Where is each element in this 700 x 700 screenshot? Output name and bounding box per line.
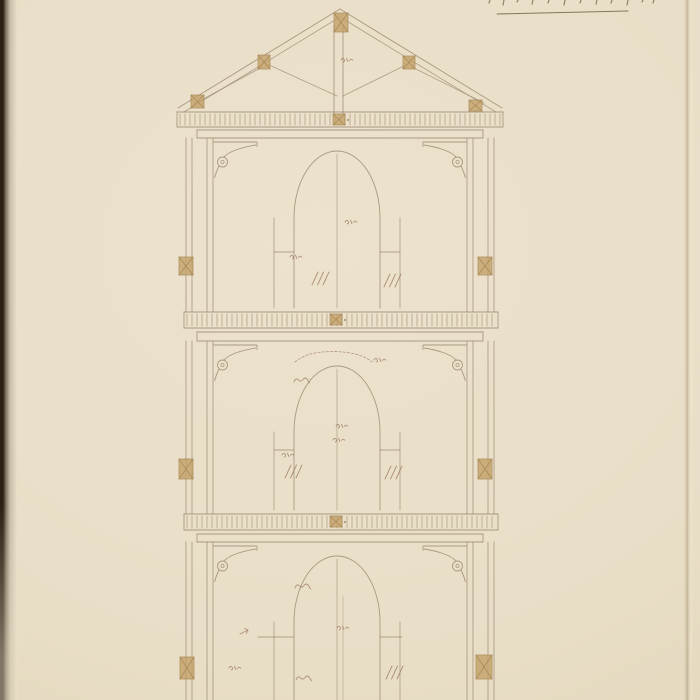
annotation-scrib — [295, 584, 311, 589]
annotation-hatch — [285, 465, 302, 478]
annotation-arcnote — [295, 351, 372, 362]
annotation-scrib — [296, 676, 312, 681]
tower-section-drawing — [0, 0, 700, 700]
handwritten-annotations — [229, 58, 403, 681]
annotation-scrib — [294, 378, 310, 383]
band-center-marks — [330, 114, 349, 527]
annotation-fig — [229, 666, 241, 670]
corbel-bracket — [213, 546, 257, 582]
story-2 — [186, 332, 494, 514]
story-3 — [186, 534, 494, 700]
wall-pilasters — [186, 341, 494, 514]
annotation-fig — [336, 424, 348, 428]
truss-joint-markers — [191, 13, 482, 111]
corbel-bracket — [423, 142, 467, 178]
annotation-hatch — [385, 466, 402, 479]
wall-pilasters — [186, 138, 494, 312]
annotation-fig — [345, 220, 357, 224]
wall-pilasters — [186, 542, 494, 700]
roof-truss — [178, 9, 502, 114]
arched-opening — [274, 366, 400, 510]
corbel-bracket — [423, 345, 467, 381]
annotation-fig — [290, 255, 302, 259]
arched-opening — [274, 151, 400, 308]
annotation-fig — [282, 453, 294, 457]
annotation-fig — [374, 358, 386, 362]
corbel-bracket — [423, 546, 467, 582]
scanned-page — [0, 0, 700, 700]
annotation-hatch — [384, 274, 401, 287]
story-1 — [186, 130, 494, 312]
inscription-fragment — [489, 0, 654, 14]
annotation-tick — [240, 629, 248, 635]
arched-opening — [258, 556, 402, 700]
annotation-fig — [333, 438, 345, 442]
corbel-bracket — [213, 345, 257, 381]
corbel-bracket — [213, 142, 257, 178]
annotation-hatch — [386, 666, 403, 679]
annotation-hatch — [312, 272, 329, 285]
